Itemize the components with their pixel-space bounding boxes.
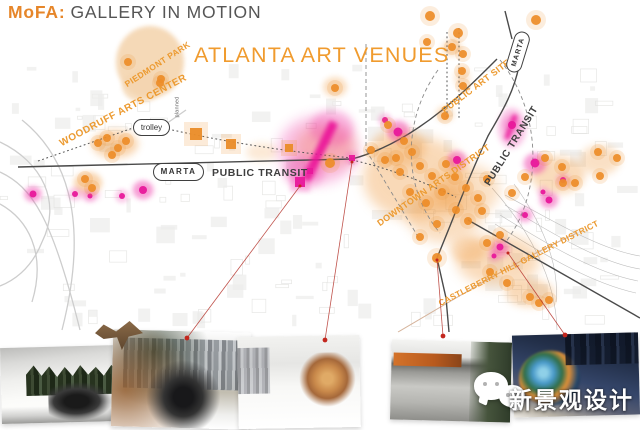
venue-dot <box>406 188 414 196</box>
venue-dot <box>452 206 460 214</box>
venue-dot <box>521 173 529 181</box>
venue-dot <box>453 28 463 38</box>
photo-layer <box>394 352 462 367</box>
poster-title: MoFA:GALLERY IN MOTION <box>8 2 261 23</box>
venue-dot <box>88 184 96 192</box>
venue-dot <box>416 162 424 170</box>
venue-dot <box>558 163 566 171</box>
venue-dot <box>438 188 446 196</box>
photo-2 <box>111 329 251 430</box>
venue-dot <box>596 172 604 180</box>
venue-dot <box>483 239 491 247</box>
venue-dot <box>433 220 441 228</box>
venue-dot <box>483 175 491 183</box>
photo-layer <box>296 352 358 412</box>
gallery-stop <box>349 155 355 161</box>
venue-dot <box>156 79 164 87</box>
gallery-dot <box>508 121 516 129</box>
gallery-dot <box>72 191 78 197</box>
venue-dot <box>464 217 472 225</box>
orange-heat-blob <box>246 143 278 161</box>
venue-dot <box>448 43 456 51</box>
photo-layer <box>565 332 639 365</box>
photo-layer <box>237 348 270 395</box>
photo-layer <box>48 382 115 423</box>
gallery-dot <box>30 191 37 198</box>
trolley-stop <box>226 139 236 149</box>
gallery-dot <box>541 190 546 195</box>
gallery-dot <box>139 186 147 194</box>
venue-dot <box>396 168 404 176</box>
venue-dot <box>571 179 579 187</box>
venue-dot <box>613 154 621 162</box>
venue-dot <box>459 50 467 58</box>
venue-dot <box>462 184 470 192</box>
venue-dot <box>496 231 504 239</box>
watermark-text: 新景观设计 <box>509 381 634 415</box>
venue-dot <box>545 296 553 304</box>
venue-dot <box>384 121 392 129</box>
venue-dot <box>478 207 486 215</box>
venue-dot <box>122 137 130 145</box>
venue-dot <box>441 112 449 120</box>
venue-dot <box>381 156 389 164</box>
gallery-dot <box>492 254 497 259</box>
poster: ATLANTA ART VENUESPIEDMONT PARKWOODRUFF … <box>0 0 640 430</box>
photo-layer <box>111 329 251 430</box>
gallery-dot <box>522 212 528 218</box>
venue-dot <box>559 179 567 187</box>
trolley-stop <box>190 128 202 140</box>
trolley-stop <box>285 144 293 152</box>
venue-dot <box>442 160 450 168</box>
gallery-dot <box>497 244 504 251</box>
venue-dot <box>408 148 416 156</box>
venue-dot <box>124 58 132 66</box>
venue-dot <box>416 233 424 241</box>
gallery-stop <box>307 168 313 174</box>
venue-dot <box>486 268 494 276</box>
gallery-dot <box>119 193 125 199</box>
venue-dot <box>423 38 431 46</box>
venue-dot <box>425 11 435 21</box>
venue-dot <box>400 137 408 145</box>
gallery-stop <box>295 177 305 187</box>
gallery-dot <box>546 197 553 204</box>
venue-dot <box>474 194 482 202</box>
venue-dot <box>94 139 102 147</box>
venue-dot <box>392 154 400 162</box>
gallery-dot <box>453 156 461 164</box>
title-rest: GALLERY IN MOTION <box>70 2 261 22</box>
venue-dot <box>451 173 459 181</box>
venue-dot <box>325 158 335 168</box>
photo-3 <box>237 335 361 429</box>
venue-dot <box>458 67 466 75</box>
venue-dot <box>541 154 549 162</box>
venue-dot <box>459 82 467 90</box>
venue-dot <box>508 189 516 197</box>
brand-name: MoFA: <box>8 2 65 22</box>
venue-dot <box>331 84 339 92</box>
venue-dot <box>531 15 541 25</box>
transit-line <box>505 11 512 39</box>
venue-dot <box>422 199 430 207</box>
venue-dot <box>367 146 375 154</box>
venue-dot <box>108 151 116 159</box>
venue-dot <box>432 253 442 263</box>
venue-dot <box>594 148 602 156</box>
venue-dot <box>428 172 436 180</box>
venue-dot <box>503 279 511 287</box>
